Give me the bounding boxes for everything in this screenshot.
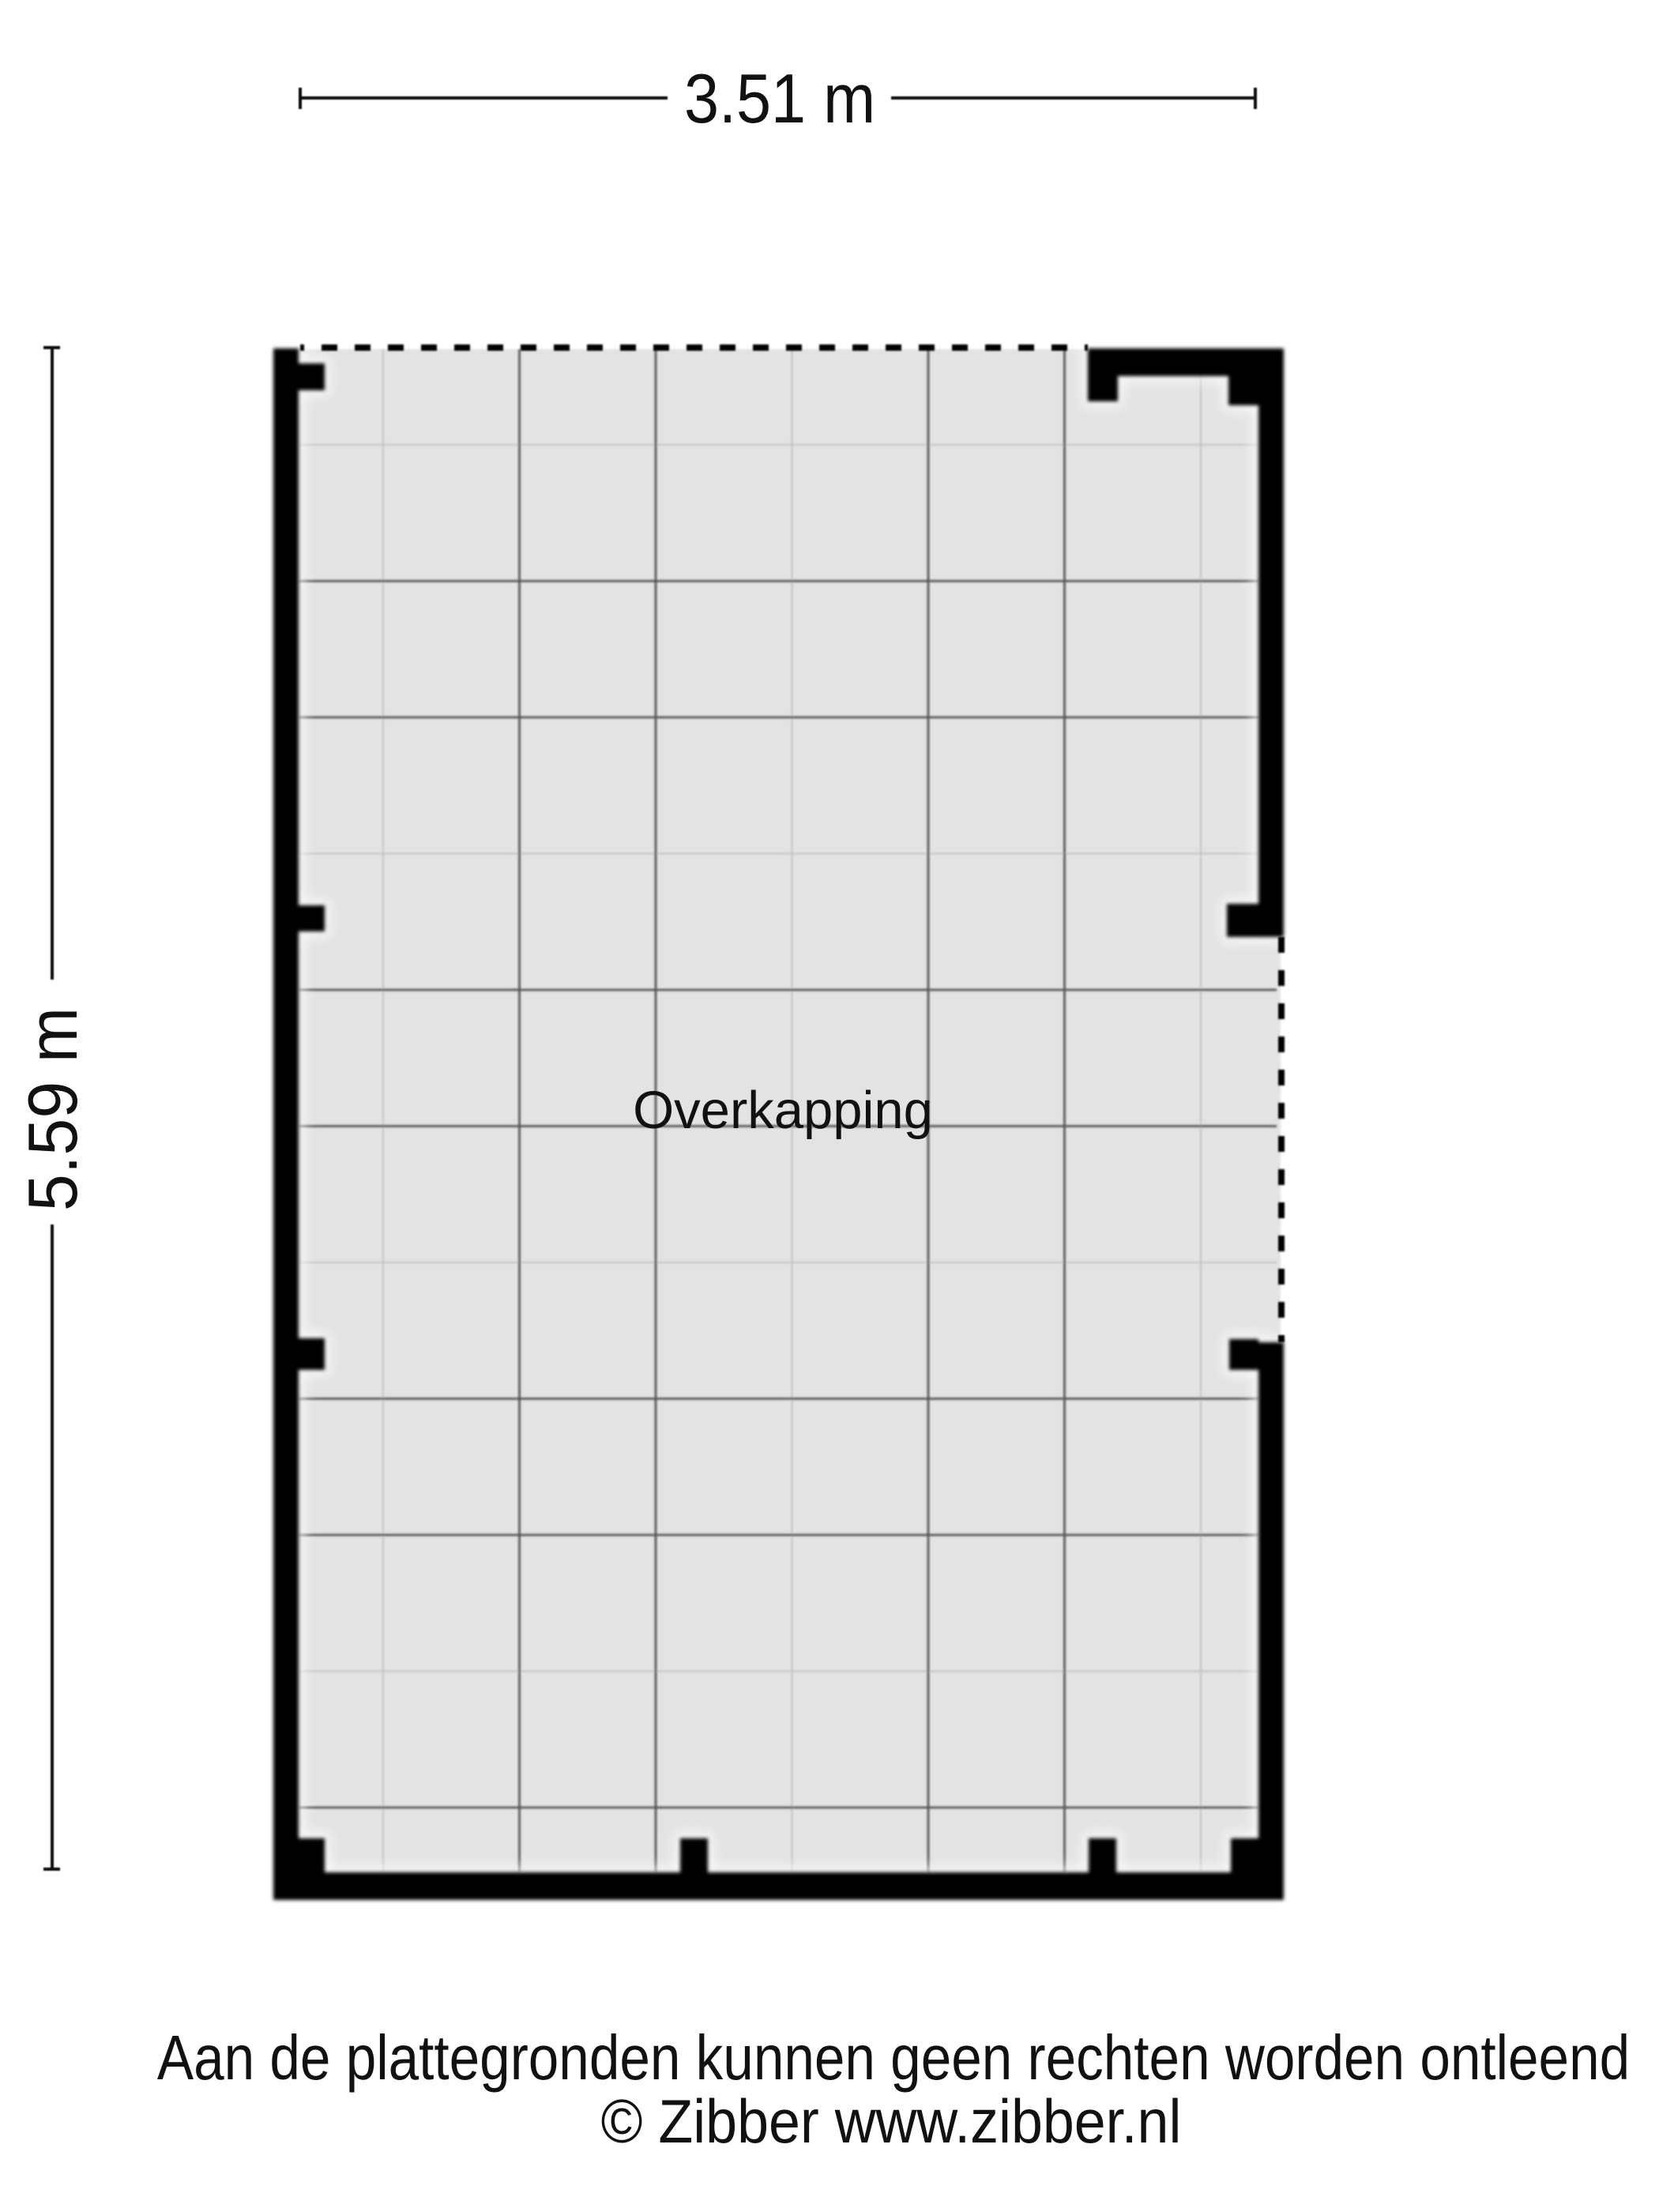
svg-text:© Zibber www.zibber.nl: © Zibber www.zibber.nl [601, 2086, 1182, 2155]
svg-text:Overkapping: Overkapping [633, 1081, 933, 1140]
svg-text:3.51 m: 3.51 m [684, 59, 875, 137]
svg-text:5.59 m: 5.59 m [14, 1007, 92, 1211]
svg-text:Aan de plattegronden kunnen ge: Aan de plattegronden kunnen geen rechten… [157, 2022, 1630, 2093]
